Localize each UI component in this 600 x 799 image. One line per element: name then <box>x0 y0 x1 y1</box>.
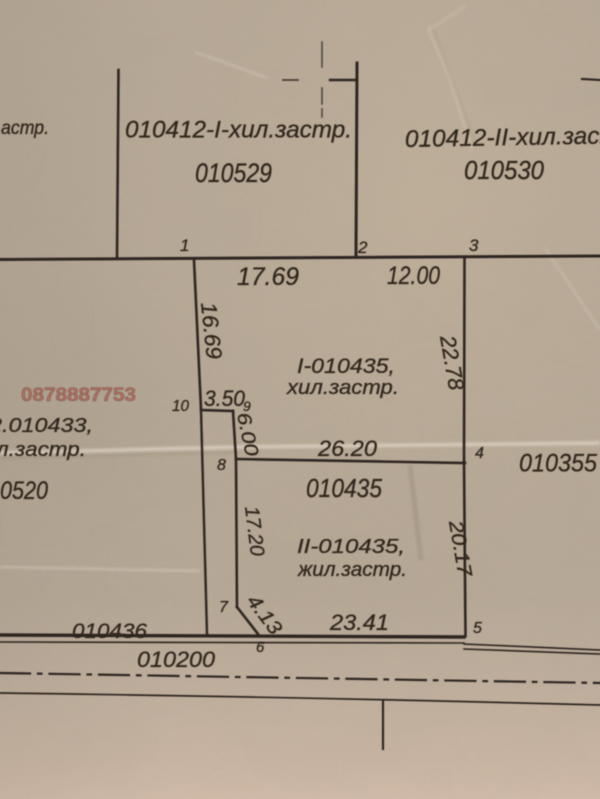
svg-text:010435: 010435 <box>306 473 382 503</box>
svg-text:010412-II-хил.заст: 010412-II-хил.заст <box>405 122 600 153</box>
svg-text:23.41: 23.41 <box>329 610 389 635</box>
svg-text:5: 5 <box>473 620 482 637</box>
svg-text:010520: 010520 <box>0 477 48 505</box>
svg-text:12.00: 12.00 <box>387 262 440 290</box>
svg-text:6: 6 <box>256 639 265 656</box>
svg-text:1: 1 <box>180 236 189 255</box>
svg-text:010436: 010436 <box>72 620 147 643</box>
svg-text:10: 10 <box>172 398 189 415</box>
svg-text:4: 4 <box>475 445 484 462</box>
svg-text:I-010435,: I-010435, <box>297 355 395 378</box>
svg-text:л.застр.: л.застр. <box>0 439 86 461</box>
svg-text:II-010435,: II-010435, <box>297 536 405 558</box>
svg-text:010355: 010355 <box>519 450 597 478</box>
svg-text:010529: 010529 <box>195 158 272 188</box>
svg-text:0878887753: 0878887753 <box>21 385 136 406</box>
svg-text:7: 7 <box>219 599 229 616</box>
svg-text:астр.: астр. <box>1 118 49 139</box>
svg-text:010200: 010200 <box>137 647 216 672</box>
svg-text:17.69: 17.69 <box>237 263 299 291</box>
svg-text:010412-I-хил.застр.: 010412-I-хил.застр. <box>125 117 352 144</box>
svg-text:2.010433,: 2.010433, <box>0 415 93 437</box>
svg-text:8: 8 <box>217 457 226 474</box>
svg-text:хил.застр.: хил.застр. <box>286 377 399 399</box>
svg-text:3.50: 3.50 <box>204 386 246 411</box>
svg-text:жил.застр.: жил.застр. <box>297 559 407 581</box>
svg-text:010530: 010530 <box>464 155 544 185</box>
svg-text:3: 3 <box>469 236 479 255</box>
svg-text:2: 2 <box>357 238 368 257</box>
svg-text:26.20: 26.20 <box>317 436 378 461</box>
